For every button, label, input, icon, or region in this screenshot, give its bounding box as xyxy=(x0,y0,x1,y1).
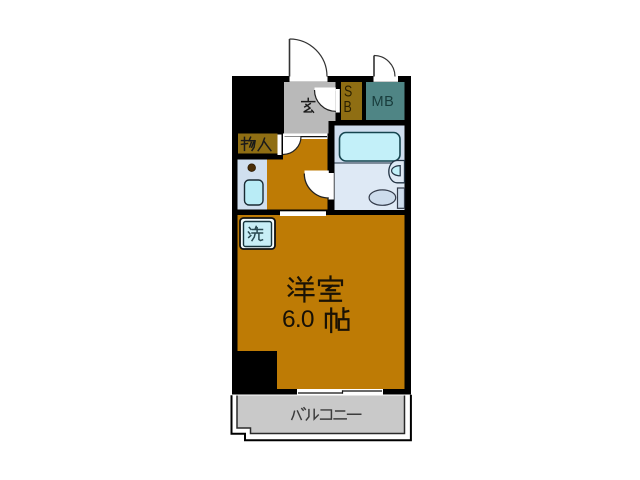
svg-text:B: B xyxy=(344,98,352,116)
svg-text:6.0: 6.0 xyxy=(282,306,314,333)
svg-text:MB: MB xyxy=(372,94,395,110)
